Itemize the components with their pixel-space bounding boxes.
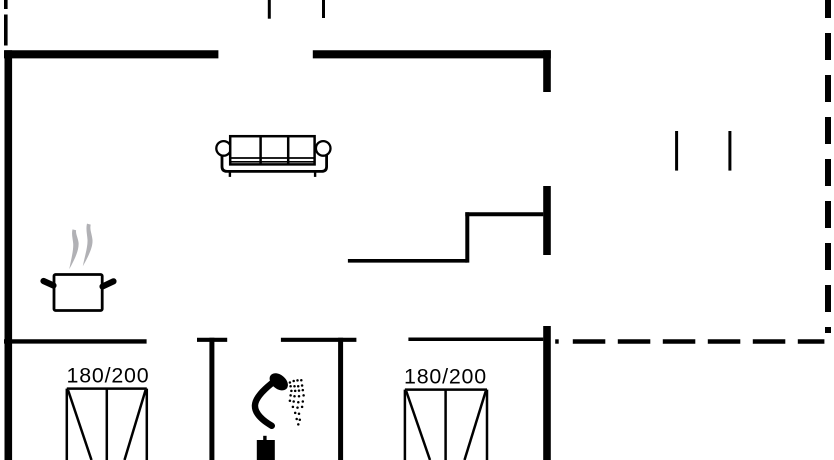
svg-text:180/200: 180/200	[404, 365, 487, 389]
svg-text:180/200: 180/200	[67, 364, 150, 388]
